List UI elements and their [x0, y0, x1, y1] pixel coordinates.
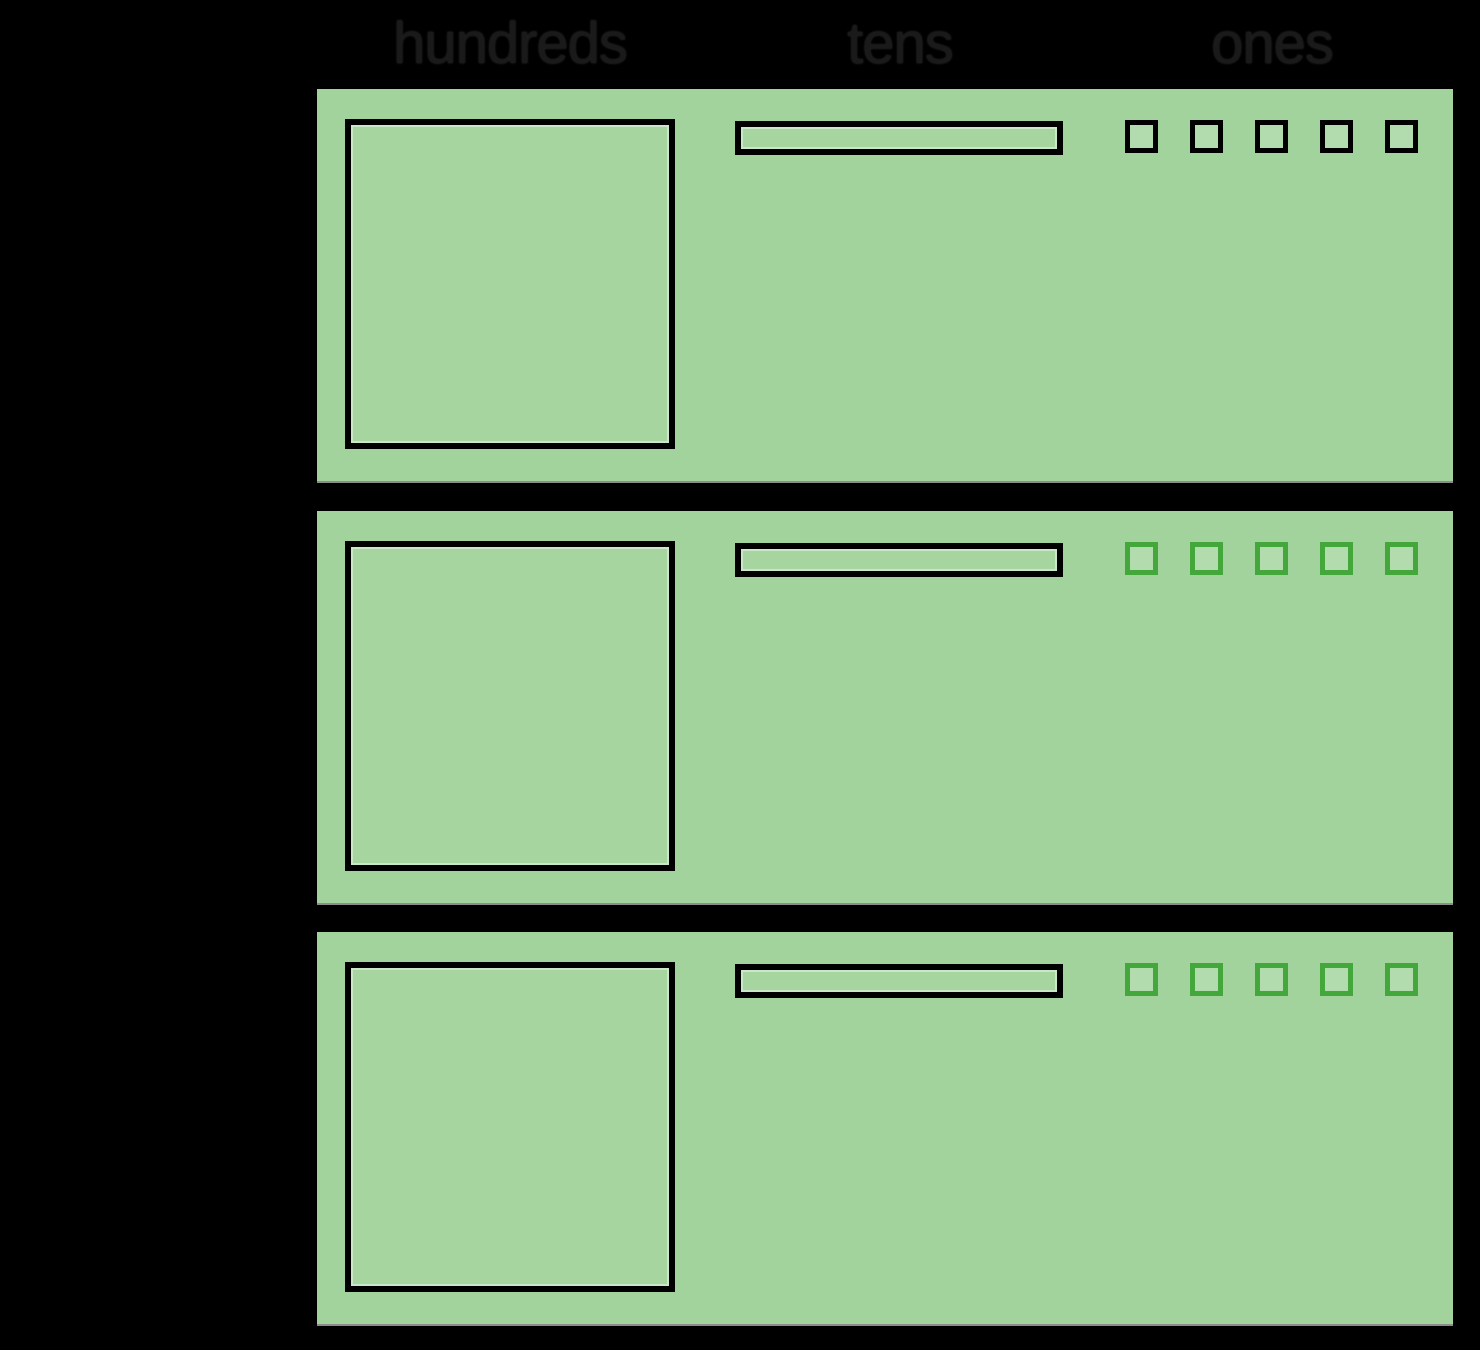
rows-container: [0, 0, 1480, 1350]
one-unit: [1125, 120, 1158, 153]
one-unit: [1190, 542, 1223, 575]
ones-group: [1125, 542, 1418, 575]
one-unit: [1190, 120, 1223, 153]
place-value-row: [317, 932, 1453, 1324]
place-value-row: [317, 511, 1453, 903]
tens-rod-block: [735, 964, 1063, 998]
one-unit: [1125, 963, 1158, 996]
one-unit: [1320, 542, 1353, 575]
one-unit: [1190, 963, 1223, 996]
tens-rod-block: [735, 543, 1063, 577]
one-unit: [1255, 963, 1288, 996]
one-unit: [1255, 120, 1288, 153]
one-unit: [1255, 542, 1288, 575]
hundreds-flat-block: [345, 119, 675, 449]
one-unit: [1320, 963, 1353, 996]
hundreds-flat-block: [345, 962, 675, 1292]
place-value-row: [317, 89, 1453, 481]
one-unit: [1385, 120, 1418, 153]
one-unit: [1385, 542, 1418, 575]
hundreds-flat-block: [345, 541, 675, 871]
tens-rod-block: [735, 121, 1063, 155]
base-ten-diagram: hundreds tens ones: [0, 0, 1480, 1350]
ones-group: [1125, 120, 1418, 153]
one-unit: [1385, 963, 1418, 996]
one-unit: [1320, 120, 1353, 153]
ones-group: [1125, 963, 1418, 996]
one-unit: [1125, 542, 1158, 575]
